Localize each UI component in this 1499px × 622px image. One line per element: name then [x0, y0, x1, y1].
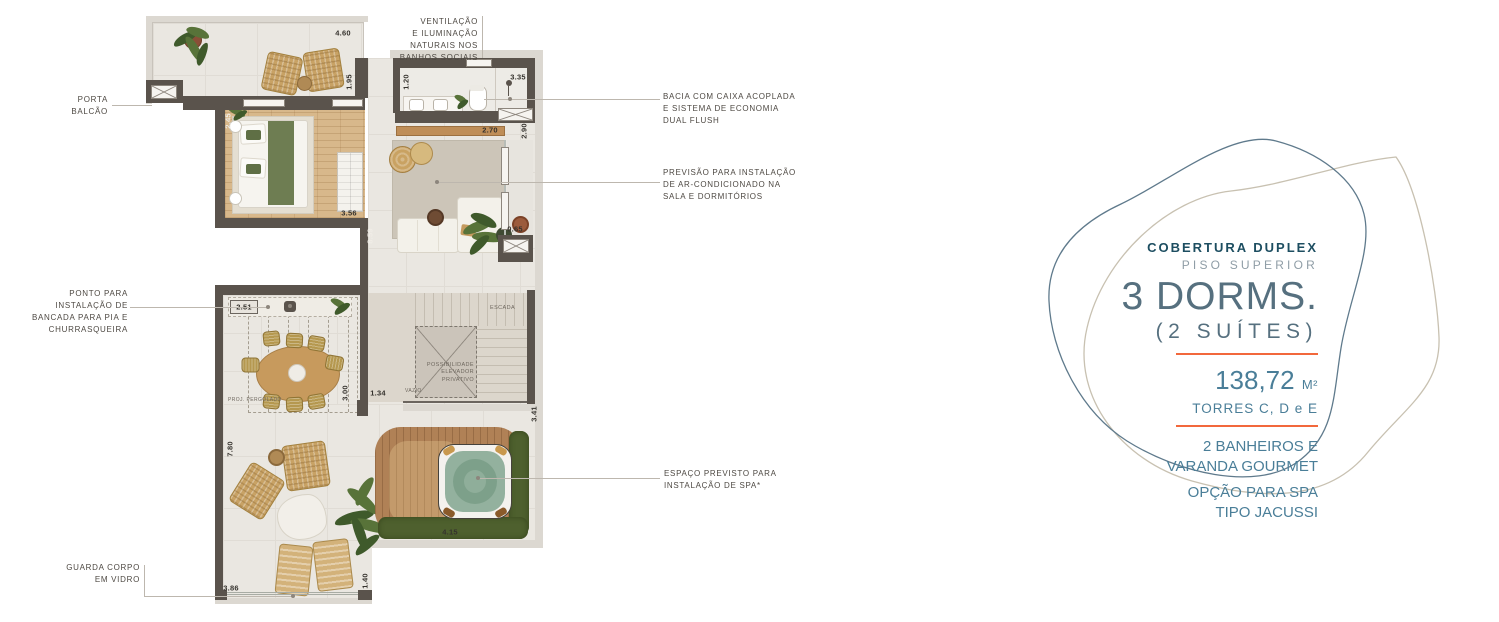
callout-guarda-corpo: GUARDA CORPO EM VIDRO: [40, 562, 140, 586]
dimension: 7.80: [226, 441, 235, 456]
wall: [360, 218, 368, 400]
dining-chair: [262, 330, 280, 347]
sun-lounger: [274, 543, 313, 596]
bed-pillow-green: [246, 164, 261, 174]
elevator-label: POSSIBILIDADE ELEVADOR PRIVATIVO: [410, 362, 474, 384]
dimension: 3.35: [510, 73, 525, 82]
dining-chair: [307, 335, 326, 353]
leader-line: [479, 478, 660, 479]
callout-spa: ESPAÇO PREVISTO PARA INSTALAÇÃO DE SPA*: [664, 468, 799, 492]
dimension: 1.95: [345, 74, 354, 89]
area-value: 138,72: [1215, 365, 1295, 395]
panel-floor: PISO SUPERIOR: [1040, 258, 1318, 272]
exterior-band: [215, 598, 372, 604]
leader-line: [144, 565, 145, 597]
dining-chair: [286, 333, 304, 349]
dining-chair: [286, 397, 304, 413]
callout-bancada: PONTO PARA INSTALAÇÃO DE BANCADA PARA PI…: [28, 288, 128, 336]
panel-feature-2: OPÇÃO PARA SPA TIPO JACUSSI: [1040, 483, 1318, 522]
side-table: [297, 76, 312, 91]
leader-dot: [476, 476, 480, 480]
dining-chair: [307, 393, 326, 411]
panel-subheadline: (2 SUÍTES): [1040, 320, 1318, 344]
wall: [527, 290, 535, 404]
callout-porta-balcao: PORTA BALCÃO: [48, 94, 108, 118]
callout-bacia: BACIA COM CAIXA ACOPLADA E SISTEMA DE EC…: [663, 91, 808, 127]
sink: [409, 99, 424, 111]
sun-lounger: [312, 538, 354, 592]
accent-rule: [1176, 425, 1318, 427]
wall: [357, 400, 368, 416]
dining-chair: [324, 354, 344, 372]
sofa: [397, 218, 459, 253]
leader-line: [437, 182, 660, 183]
bed-runner: [268, 121, 294, 205]
jacuzzi-center-inner: [464, 470, 486, 493]
wall: [527, 58, 535, 113]
pouf: [410, 142, 433, 165]
dimension: 4.15: [442, 528, 457, 537]
leader-line: [144, 596, 293, 597]
leader-dot: [508, 97, 512, 101]
toilet-tank: [470, 85, 484, 91]
callout-ar-condicionado: PREVISÃO PARA INSTALAÇÃO DE AR-CONDICION…: [663, 167, 808, 203]
panel-feature-1: 2 BANHEIROS E VARANDA GOURMET: [1040, 437, 1318, 476]
info-panel: COBERTURA DUPLEX PISO SUPERIOR 3 DORMS. …: [1040, 240, 1318, 522]
grill-center: [288, 304, 292, 308]
wall: [355, 58, 368, 98]
dimension: 1.34: [370, 389, 385, 398]
dimension: 4.60: [335, 29, 350, 38]
bed-pillow-green: [246, 130, 261, 140]
panel-headline: 3 DORMS.: [1040, 277, 1318, 316]
door-symbol: [332, 99, 363, 107]
dimension: 8.59: [366, 228, 375, 243]
leader-dot: [291, 594, 295, 598]
accent-rule: [1176, 353, 1318, 355]
stairs-treads: [477, 326, 527, 402]
stairs-label: ESCADA: [490, 305, 515, 312]
wall: [393, 68, 400, 113]
panel-towers: TORRES C, D e E: [1040, 401, 1318, 416]
wall: [215, 285, 362, 295]
shower-divider: [495, 68, 496, 111]
entry-threshold: [403, 401, 535, 403]
exterior-band: [535, 50, 543, 546]
dimension: 3.56: [341, 209, 356, 218]
table-centerpiece: [288, 364, 306, 382]
panel-kicker: COBERTURA DUPLEX: [1040, 240, 1318, 255]
dimension: 1.40: [361, 573, 370, 588]
leader-line: [112, 105, 152, 106]
leader-line: [130, 307, 268, 308]
entry-band: [403, 404, 535, 411]
dimension: 3.00: [341, 385, 350, 400]
organic-coffee-table: [277, 494, 327, 540]
window-symbol: [498, 108, 533, 121]
dimension: 2.45: [224, 113, 233, 128]
sink: [433, 99, 448, 111]
dimension: 3.41: [530, 406, 539, 421]
pergola-label: PROJ. PERGOLADO: [228, 397, 282, 404]
dining-chair: [242, 358, 260, 373]
shaft-symbol: [503, 239, 529, 253]
shower-arm: [508, 86, 509, 96]
wall: [215, 218, 368, 228]
sofa-seam: [417, 220, 418, 251]
nightstand: [229, 192, 242, 205]
vazio-label: VAZIO: [405, 388, 422, 395]
terrace-armchair: [281, 440, 331, 492]
leader-dot: [266, 305, 270, 309]
side-table: [268, 449, 285, 466]
dimension: 1.20: [402, 74, 411, 89]
dimension: 2.70: [482, 126, 497, 135]
leader-dot: [435, 180, 439, 184]
leader-line: [482, 16, 483, 58]
area-unit: M²: [1302, 377, 1318, 392]
balcony-door-symbol: [151, 85, 177, 99]
wall: [358, 590, 372, 600]
callout-ventilation: VENTILAÇÃO E ILUMINAÇÃO NATURAIS NOS BAN…: [380, 16, 478, 64]
floor-plan-page: ESCADA POSSIBILIDADE ELEVADOR PRIVATIVO …: [0, 0, 1499, 622]
coffee-table: [427, 209, 444, 226]
wall: [215, 285, 223, 598]
panel-area: 138,72 M²: [1040, 365, 1318, 396]
dimension: 3.86: [223, 584, 238, 593]
dimension: 0.65: [507, 225, 522, 234]
door-symbol: [243, 99, 285, 107]
glass-door-leaf: [501, 147, 509, 185]
dimension: 2.90: [520, 123, 529, 138]
floor-plan: ESCADA POSSIBILIDADE ELEVADOR PRIVATIVO …: [0, 0, 760, 622]
wardrobe: [337, 152, 363, 212]
